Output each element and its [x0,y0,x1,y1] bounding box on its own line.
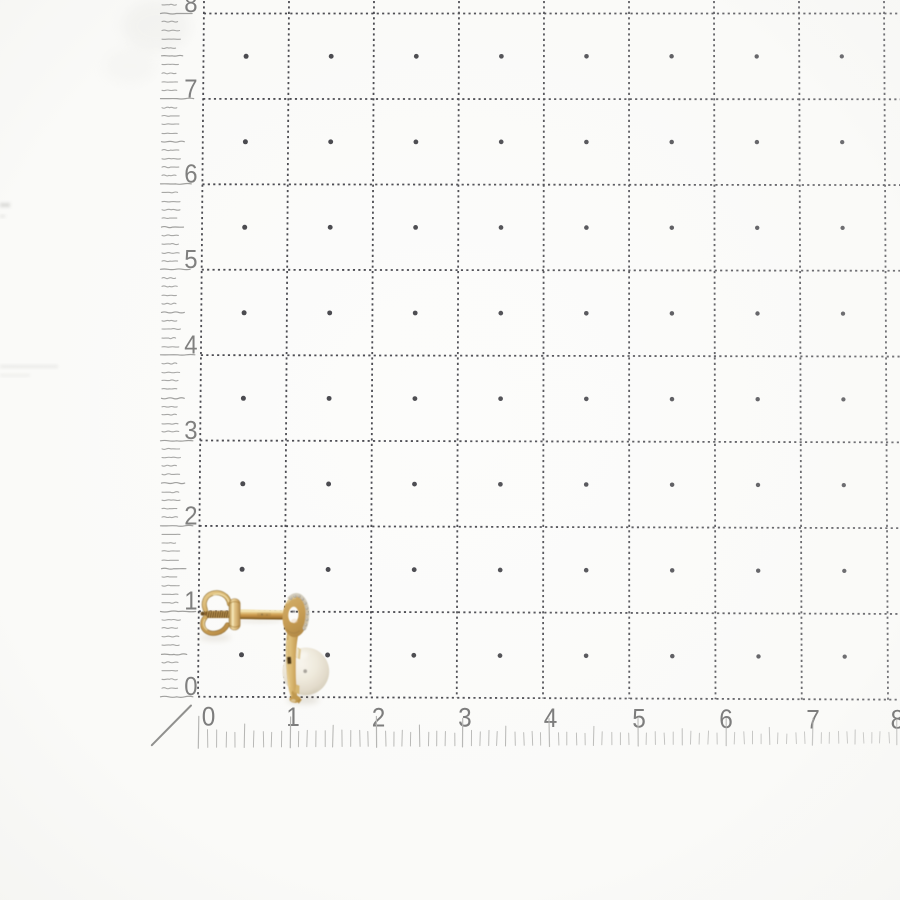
svg-text:0: 0 [202,703,216,732]
svg-text:3: 3 [184,416,197,445]
svg-text:3: 3 [458,704,472,733]
svg-text:1: 1 [184,587,197,616]
svg-text:4: 4 [544,704,558,733]
svg-text:8: 8 [184,0,197,18]
svg-text:4: 4 [184,331,197,360]
svg-text:8: 8 [891,706,900,735]
svg-text:6: 6 [184,160,197,189]
svg-text:1: 1 [286,703,300,732]
svg-text:7: 7 [184,74,197,103]
svg-text:5: 5 [184,245,197,274]
svg-text:0: 0 [184,672,197,701]
svg-text:2: 2 [184,501,197,530]
svg-text:5: 5 [632,705,646,734]
svg-text:2: 2 [372,703,386,732]
